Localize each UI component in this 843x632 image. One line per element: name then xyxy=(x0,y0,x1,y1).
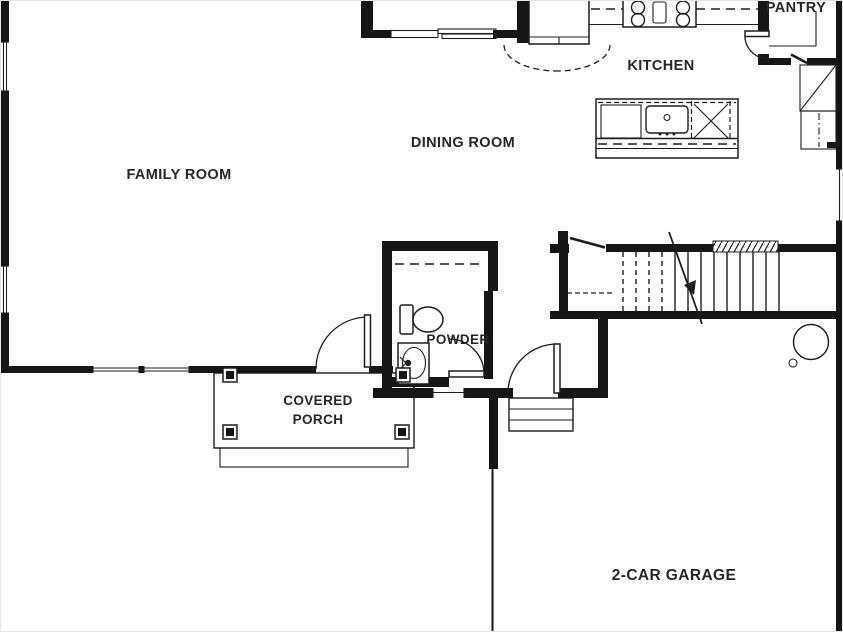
label-dining-room: DINING ROOM xyxy=(411,135,515,151)
label-covered-porch-1: COVERED xyxy=(283,393,353,408)
toilet xyxy=(400,305,443,334)
label-pantry: PANTRY xyxy=(766,1,826,16)
porch-post xyxy=(396,368,410,382)
porch-post xyxy=(223,425,237,439)
range-cooktop xyxy=(623,1,696,27)
label-garage: 2-CAR GARAGE xyxy=(612,567,737,584)
label-family-room: FAMILY ROOM xyxy=(126,167,231,183)
kitchen-island xyxy=(596,99,738,158)
label-powder: POWDER xyxy=(426,332,489,347)
stair-railing-hatch xyxy=(713,241,778,252)
window xyxy=(433,388,464,398)
porch-post xyxy=(395,425,409,439)
label-covered-porch-2: PORCH xyxy=(293,412,344,427)
floor-plan-drawing: FAMILY ROOM DINING ROOM KITCHEN PANTRY P… xyxy=(1,1,843,632)
floor-plan-page: FAMILY ROOM DINING ROOM KITCHEN PANTRY P… xyxy=(0,0,843,632)
porch-post xyxy=(223,368,237,382)
label-kitchen: KITCHEN xyxy=(627,58,694,74)
